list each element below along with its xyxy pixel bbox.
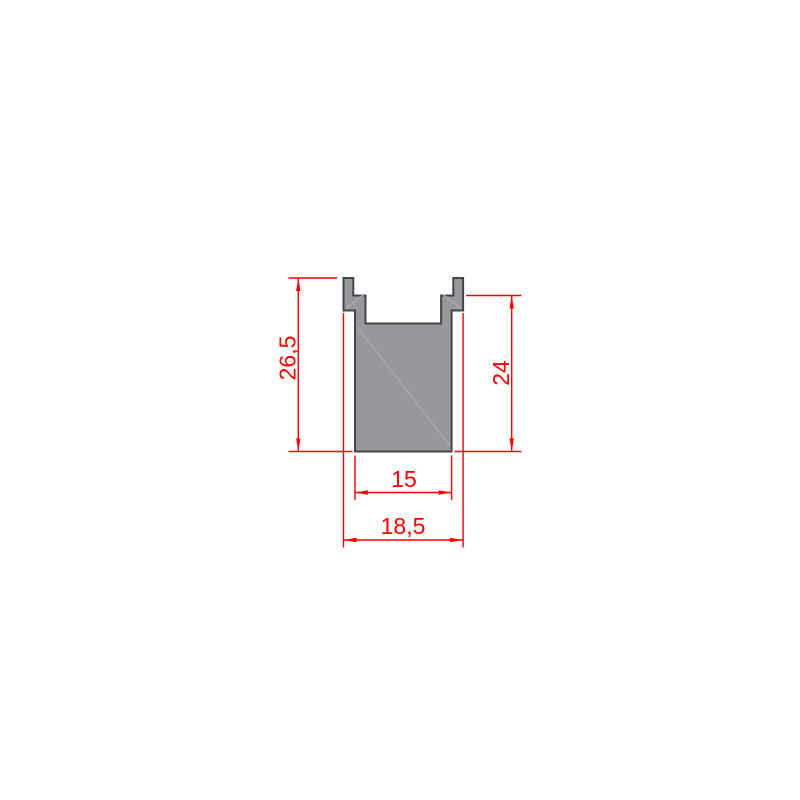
arrow-left-icon bbox=[355, 490, 368, 494]
arrow-up-icon bbox=[510, 296, 514, 309]
arrow-up-icon bbox=[296, 278, 300, 291]
dim-label-overall-height: 26,5 bbox=[275, 336, 301, 381]
profile bbox=[344, 278, 464, 452]
profile-drawing: 26,5 24 15 18,5 bbox=[0, 0, 800, 800]
dimension-base-width: 15 bbox=[355, 456, 452, 501]
arrow-right-icon bbox=[450, 538, 463, 542]
arrow-left-icon bbox=[344, 538, 357, 542]
arrow-down-icon bbox=[510, 439, 514, 452]
arrow-down-icon bbox=[296, 439, 300, 452]
dim-label-groove-height: 24 bbox=[488, 360, 514, 386]
dim-label-overall-width: 18,5 bbox=[381, 513, 426, 539]
dim-label-base-width: 15 bbox=[391, 466, 417, 492]
profile-outline bbox=[344, 278, 464, 452]
drawing-canvas: 26,5 24 15 18,5 bbox=[0, 0, 800, 800]
arrow-right-icon bbox=[439, 490, 452, 494]
dimension-groove-height: 24 bbox=[455, 296, 522, 452]
dimension-overall-height: 26,5 bbox=[275, 278, 353, 452]
